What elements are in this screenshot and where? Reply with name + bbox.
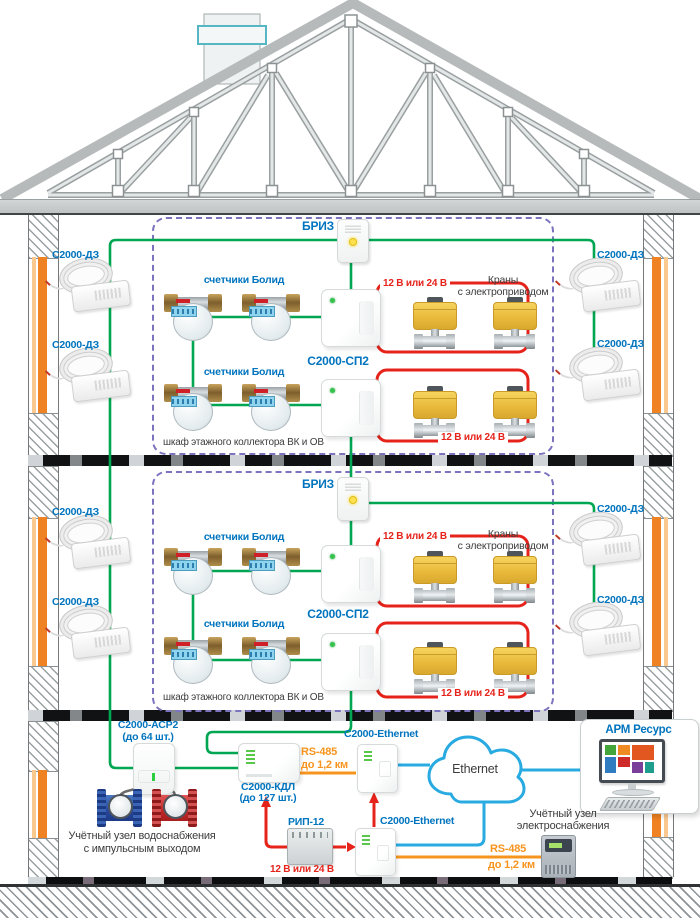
floor2-sp2-bottom-device xyxy=(321,633,381,691)
floor2-valve-2 xyxy=(492,551,538,603)
roof-truss xyxy=(0,0,700,213)
floor1-dz-left-bottom-label: С2000-ДЗ xyxy=(52,340,99,351)
floor2-valves-label: Краны с электроприводом xyxy=(456,528,550,552)
floor1-valve-1 xyxy=(412,297,458,349)
floor2-dz-right-top-label: С2000-ДЗ xyxy=(597,504,644,515)
water-unit-label: Учётный узел водоснабжения с импульсным … xyxy=(52,830,232,856)
floor1-valve-4 xyxy=(492,386,538,438)
chimney-cap xyxy=(198,26,266,44)
monitor-base xyxy=(612,789,654,796)
rs485-bottom-sub: до 1,2 км xyxy=(488,859,535,872)
floor2-dz-right-bottom-device xyxy=(556,603,644,655)
floor2-dz-left-top-device xyxy=(46,516,134,568)
eave-band xyxy=(0,199,700,215)
water-meter-hot xyxy=(152,789,197,827)
floor2-water-meter-2 xyxy=(242,548,300,595)
energy-unit-label: Учётный узел электроснабжения xyxy=(515,808,611,832)
floor2-water-meter-1 xyxy=(164,548,222,595)
floor1-briz-device xyxy=(337,219,369,263)
floor1-dz-left-top-device xyxy=(46,259,134,311)
floor1-power-top-label: 12 В или 24 В xyxy=(380,278,450,289)
floor1-dz-right-top-device xyxy=(556,259,644,311)
floor1-dz-right-bottom-label: С2000-ДЗ xyxy=(597,339,644,350)
floor2-water-meter-4 xyxy=(242,637,300,684)
floor2-briz-device xyxy=(337,477,369,521)
water-meter-cold xyxy=(97,789,142,827)
ethernet-bottom-device xyxy=(355,828,396,876)
floor2-dz-left-bottom-device xyxy=(46,606,134,658)
floor2-dz-right-top-device xyxy=(556,513,644,565)
floor1-power-bottom-label: 12 В или 24 В xyxy=(438,432,508,443)
floor1-valves-label: Краны с электроприводом xyxy=(456,274,550,298)
floor2-dz-right-bottom-label: С2000-ДЗ xyxy=(597,595,644,606)
diagram-canvas: БРИЗ С2000-ДЗ С2000-ДЗ С2000-ДЗ С2000-ДЗ… xyxy=(0,0,700,918)
basement-power-label: 12 В или 24 В xyxy=(270,864,334,875)
floor1-water-meter-1 xyxy=(164,294,222,341)
ethernet-bottom-label: C2000-Ethernet xyxy=(380,816,454,827)
floor2-power-top-label: 12 В или 24 В xyxy=(380,531,450,542)
floor1-water-meter-3 xyxy=(164,384,222,431)
floor2-water-meter-3 xyxy=(164,637,222,684)
rs485-top-label: RS-485 до 1,2 км xyxy=(301,746,348,772)
truss-members xyxy=(48,20,654,195)
heating-risers-right xyxy=(644,257,673,413)
floor1-sp2-bottom-device xyxy=(321,379,381,437)
floor1-briz-label: БРИЗ xyxy=(296,221,334,232)
kdl-label: С2000-КДЛ (до 127 шт.) xyxy=(228,782,308,804)
kdl-device xyxy=(238,743,300,783)
floor2-dz-left-top-label: С2000-ДЗ xyxy=(52,507,99,518)
floor1-dz-right-top-label: С2000-ДЗ xyxy=(597,250,644,261)
floor1-meters-top-label: счетчики Болид xyxy=(196,275,292,286)
floor2-meters-top-label: счетчики Болид xyxy=(196,532,292,543)
floor1-valve-2 xyxy=(492,297,538,349)
floor2-meters-bottom-label: счетчики Болид xyxy=(196,619,292,630)
rs485-bottom-label: RS-485 xyxy=(490,843,526,856)
floor2-cabinet-label: шкаф этажного коллектора ВК и ОВ xyxy=(163,692,324,704)
floor1-valve-3 xyxy=(412,386,458,438)
floor1-water-meter-4 xyxy=(242,384,300,431)
floor2-sp2-label: С2000-СП2 xyxy=(300,609,376,620)
floor2-valve-3 xyxy=(412,642,458,694)
arm-monitor xyxy=(599,739,665,811)
rip-label: РИП-12 xyxy=(288,817,324,828)
floor1-water-meter-2 xyxy=(242,294,300,341)
rip-device xyxy=(287,828,333,865)
floor1-dz-right-bottom-device xyxy=(556,348,644,400)
floor2-valve-4 xyxy=(492,642,538,694)
floor2-briz-label: БРИЗ xyxy=(296,479,334,490)
arm-label: АРМ Ресурс xyxy=(580,725,697,736)
floor1-dz-left-bottom-device xyxy=(46,349,134,401)
floor2-dz-left-bottom-label: С2000-ДЗ xyxy=(52,597,99,608)
floor1-sp2-label: С2000-СП2 xyxy=(300,356,376,367)
ground-hatch xyxy=(0,884,700,918)
slab-floor1-floor2 xyxy=(28,455,672,466)
floor1-dz-left-top-label: С2000-ДЗ xyxy=(52,250,99,261)
floor1-sp2-top-device xyxy=(321,289,381,347)
cloud-label: Ethernet xyxy=(424,763,526,775)
asr2-device xyxy=(133,743,175,795)
ethernet-top-device xyxy=(357,744,398,793)
floor2-sp2-top-device xyxy=(321,545,381,603)
floor2-power-bottom-label: 12 В или 24 В xyxy=(438,688,508,699)
electric-meter-device xyxy=(541,835,576,878)
floor1-meters-bottom-label: счетчики Болид xyxy=(196,367,292,378)
floor1-cabinet-label: шкаф этажного коллектора ВК и ОВ xyxy=(163,437,324,449)
asr2-label: С2000-АСР2 (до 64 шт.) xyxy=(106,719,190,743)
floor2-valve-1 xyxy=(412,551,458,603)
ethernet-top-label: C2000-Ethernet xyxy=(344,729,418,740)
